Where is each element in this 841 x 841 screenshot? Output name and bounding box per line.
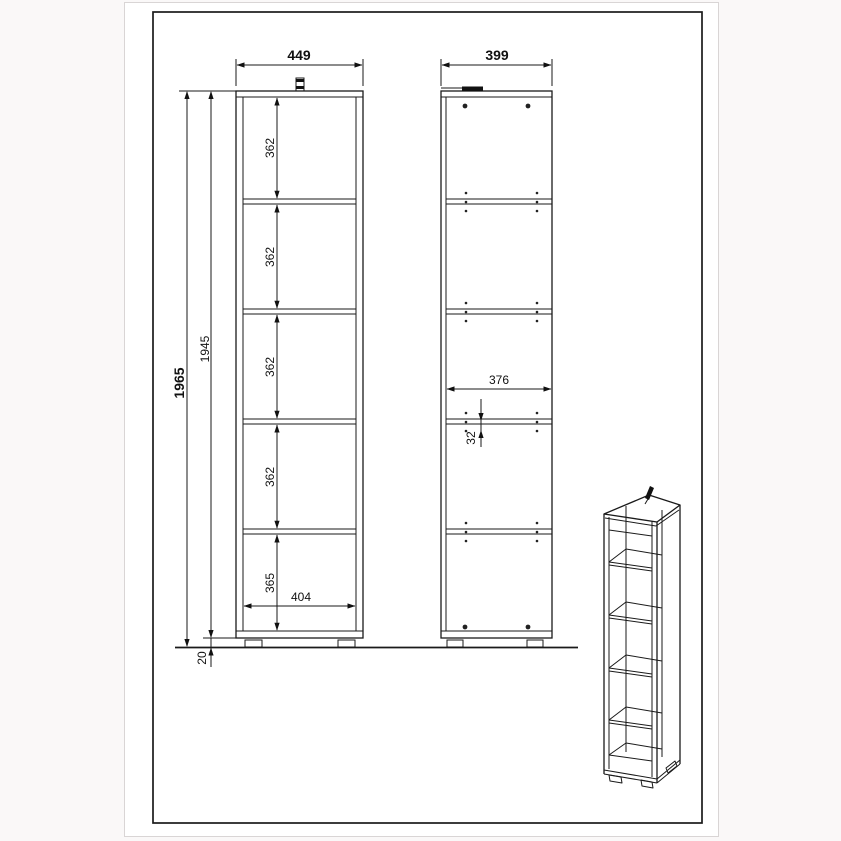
- dim-front-width: 449: [287, 47, 311, 63]
- front-view: [236, 78, 363, 647]
- dimensions: 449 399 1965 1945 20 362: [171, 47, 552, 667]
- side-shelves: [446, 199, 552, 534]
- svg-text:362: 362: [263, 467, 277, 487]
- front-feet: [245, 640, 355, 647]
- dim-plinth-height: 20: [195, 651, 209, 665]
- dim-compartments: 362 362 362 362 365: [263, 98, 280, 631]
- wall-bracket-side: [441, 87, 483, 92]
- front-shelves: [243, 199, 356, 534]
- side-view: [441, 87, 552, 648]
- svg-text:362: 362: [263, 357, 277, 377]
- dim-pin-spacing: 32: [464, 431, 478, 445]
- side-feet: [447, 640, 543, 647]
- iso-view: [604, 486, 680, 788]
- svg-text:365: 365: [263, 573, 277, 593]
- dim-height-body: 1945: [198, 335, 212, 362]
- screw-holes: [463, 104, 531, 630]
- iso-wall-bracket: [645, 486, 654, 504]
- wall-bracket-front: [296, 78, 304, 91]
- svg-text:362: 362: [263, 138, 277, 158]
- iso-shelves: [609, 549, 662, 761]
- svg-text:362: 362: [263, 247, 277, 267]
- dim-inner-depth: 376: [489, 373, 509, 387]
- dim-height-total: 1965: [171, 367, 187, 398]
- pin-holes: [465, 192, 539, 543]
- dim-inner-width: 404: [291, 590, 311, 604]
- technical-drawing: 449 399 1965 1945 20 362: [0, 0, 841, 841]
- dim-side-depth: 399: [485, 47, 509, 63]
